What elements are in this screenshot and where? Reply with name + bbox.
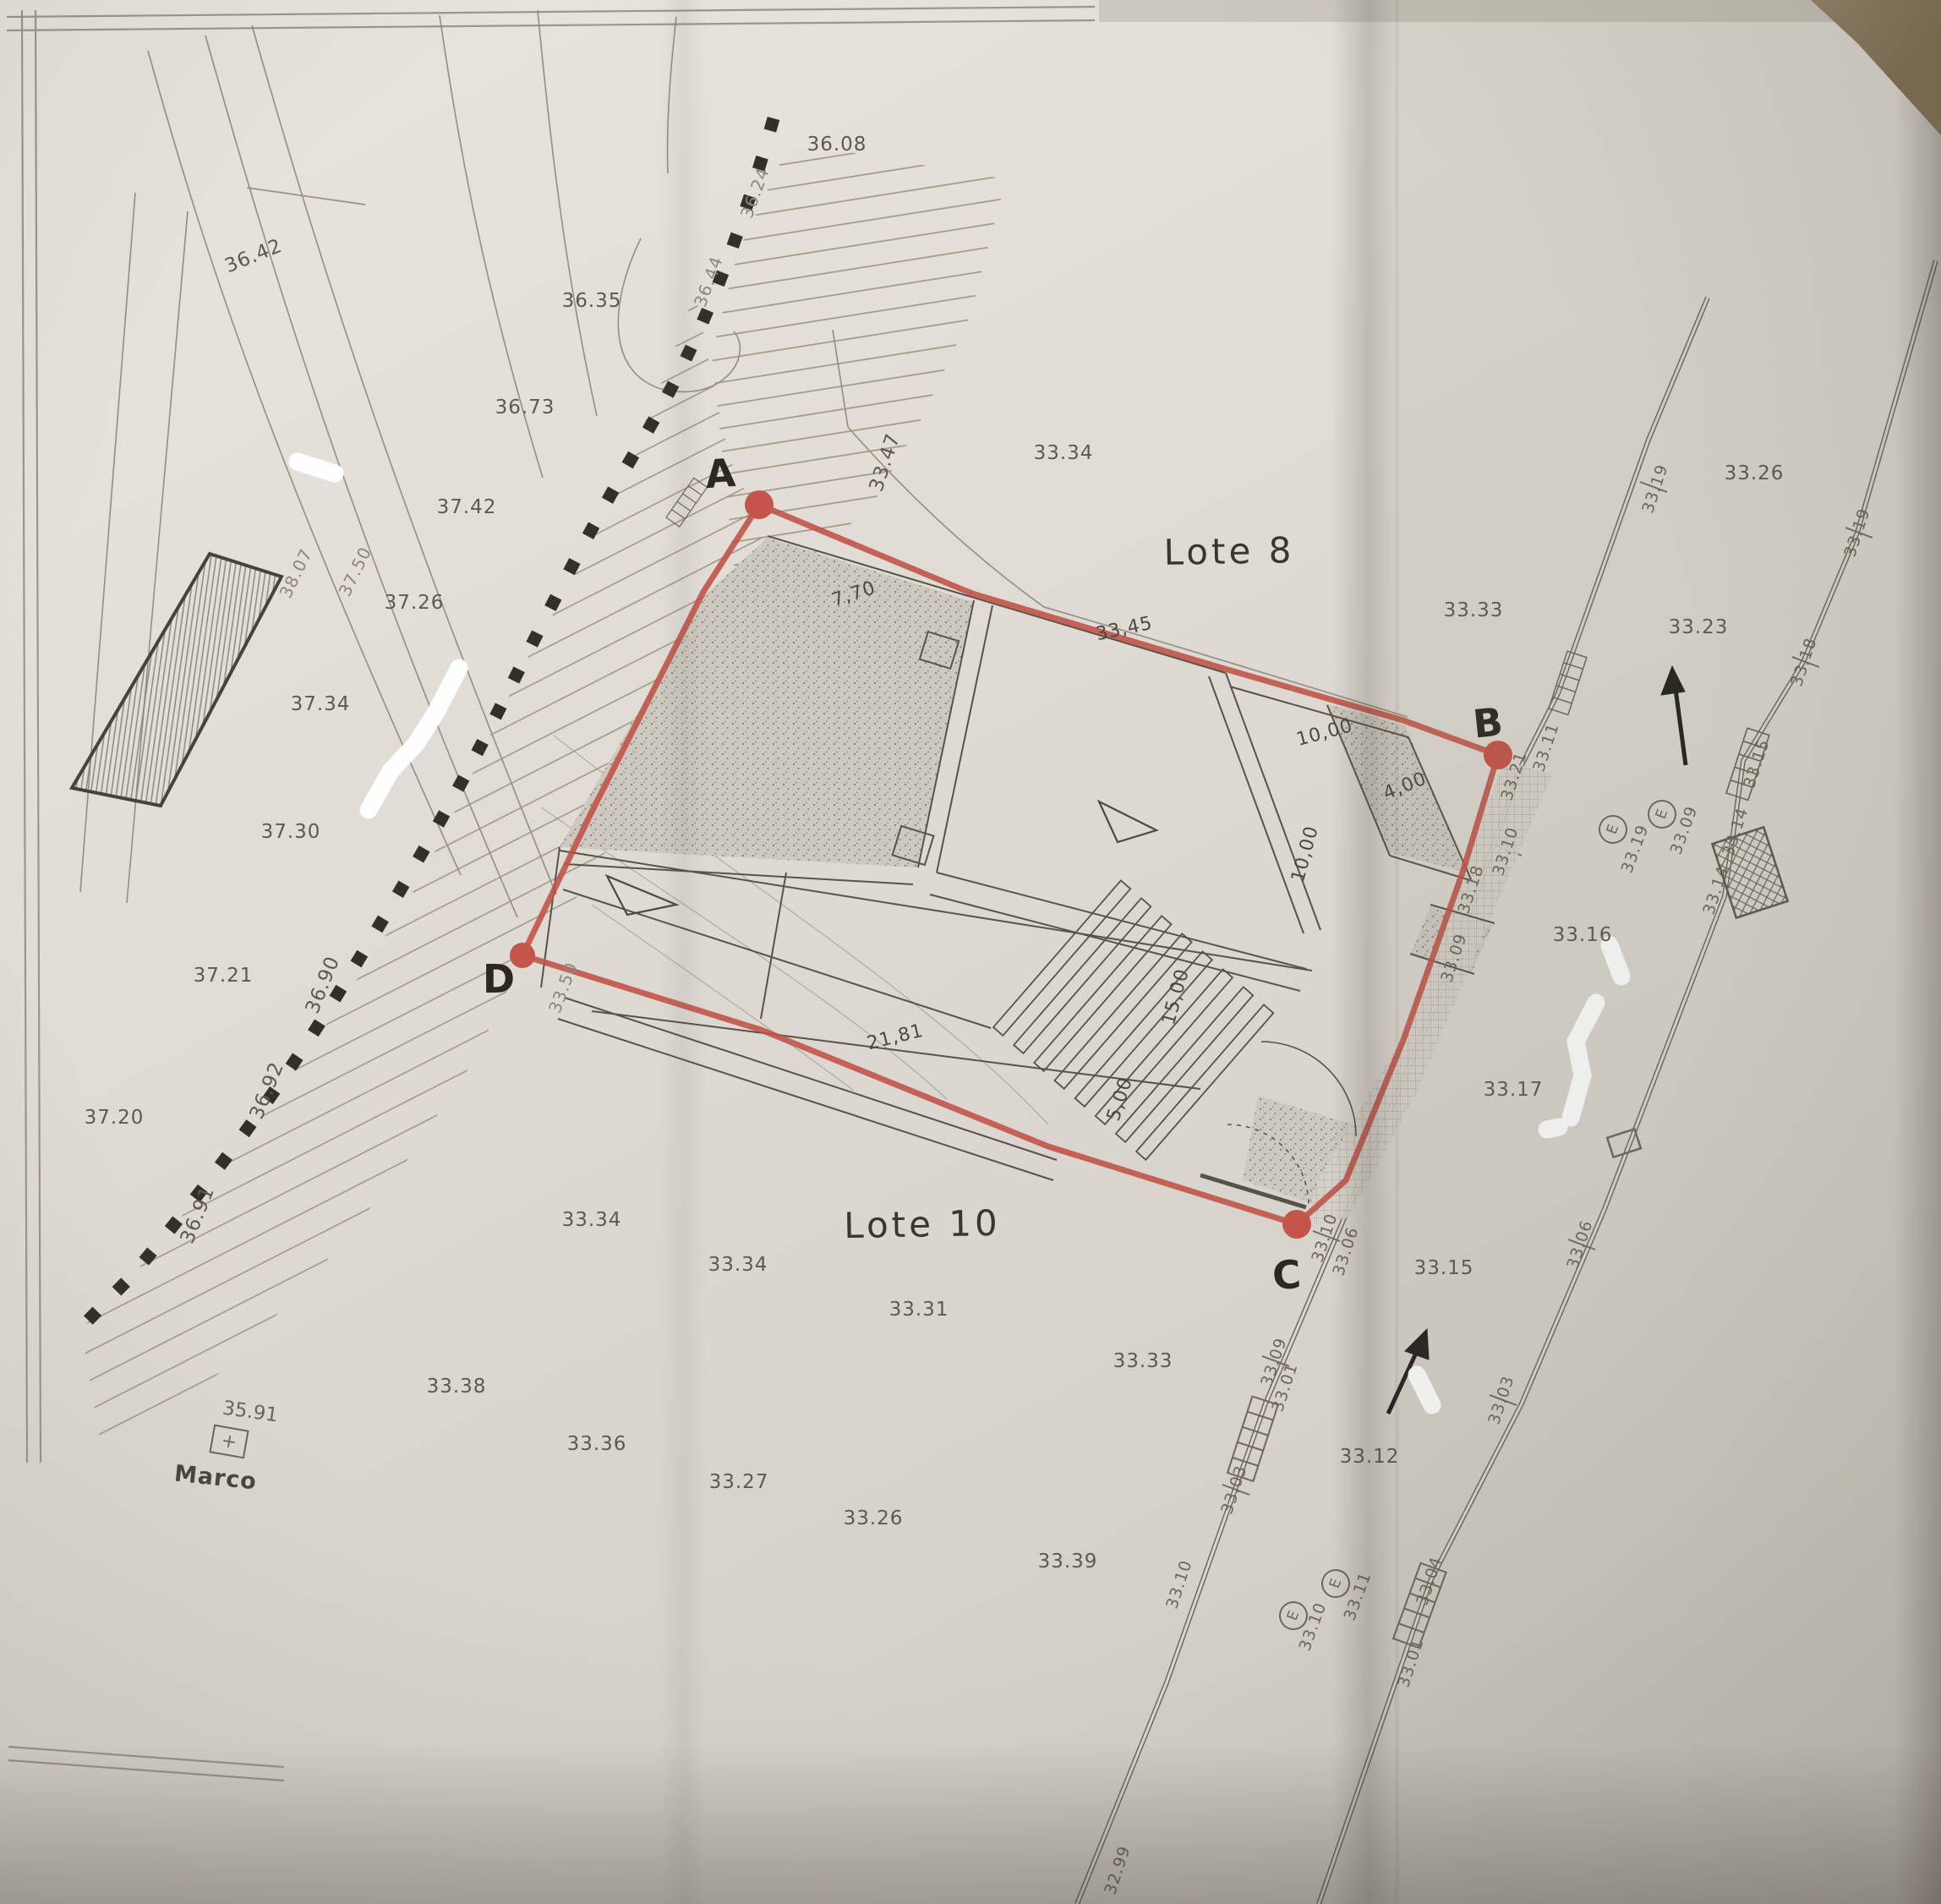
elevation-label: 33.39 xyxy=(1038,1551,1098,1573)
lot-label: Lote 10 xyxy=(844,1202,1001,1246)
elevation-label: 37.42 xyxy=(437,496,497,518)
elevation-label: 33.27 xyxy=(709,1471,769,1493)
lot-label: Lote 8 xyxy=(1163,529,1295,573)
corner-label: C xyxy=(1271,1251,1302,1299)
elevation-label: 33.34 xyxy=(1034,442,1094,464)
corner-label: B xyxy=(1471,698,1506,747)
elevation-label: 33.16 xyxy=(1553,924,1613,946)
plan-drawing xyxy=(0,0,1941,1904)
survey-plan-photo: 36.0836.4236.3536.7337.4237.2637.3437.30… xyxy=(0,0,1941,1904)
corner-label: A xyxy=(703,450,736,497)
elevation-label: 33.15 xyxy=(1414,1257,1474,1279)
elevation-label: 37.34 xyxy=(291,693,351,715)
elevation-label: 33.34 xyxy=(708,1254,768,1276)
level-triangle xyxy=(607,876,676,915)
elevation-label: 33.12 xyxy=(1340,1446,1400,1468)
elevation-label: 36.73 xyxy=(495,397,555,419)
small-bracket-symbol xyxy=(1607,1129,1641,1157)
elevation-label: 33.36 xyxy=(567,1433,627,1455)
elevation-label: 33.34 xyxy=(562,1209,622,1231)
north-arrow xyxy=(1661,666,1686,765)
elevation-label: 33.23 xyxy=(1669,616,1729,638)
elevation-label: 33.33 xyxy=(1444,599,1504,621)
elevation-label: 33.26 xyxy=(1725,462,1785,484)
elevation-label: 36.08 xyxy=(807,134,867,156)
elevation-label: 33.31 xyxy=(889,1299,949,1321)
level-triangle xyxy=(1099,802,1156,842)
elevation-label: 33.33 xyxy=(1113,1350,1173,1372)
elevation-label: 33.17 xyxy=(1484,1079,1544,1101)
marco-benchmark-icon: + xyxy=(209,1425,249,1459)
corner-label: D xyxy=(483,956,515,1002)
elevation-label: 33.38 xyxy=(427,1376,487,1398)
elevation-label: 33.26 xyxy=(844,1507,904,1529)
elevation-label: 36.35 xyxy=(562,290,622,312)
elevation-label: 37.20 xyxy=(85,1107,145,1129)
elevation-label: 37.30 xyxy=(261,821,321,843)
building-plan xyxy=(541,536,1552,1228)
elevation-label: 37.26 xyxy=(385,592,445,614)
elevation-label: 37.21 xyxy=(194,965,254,987)
